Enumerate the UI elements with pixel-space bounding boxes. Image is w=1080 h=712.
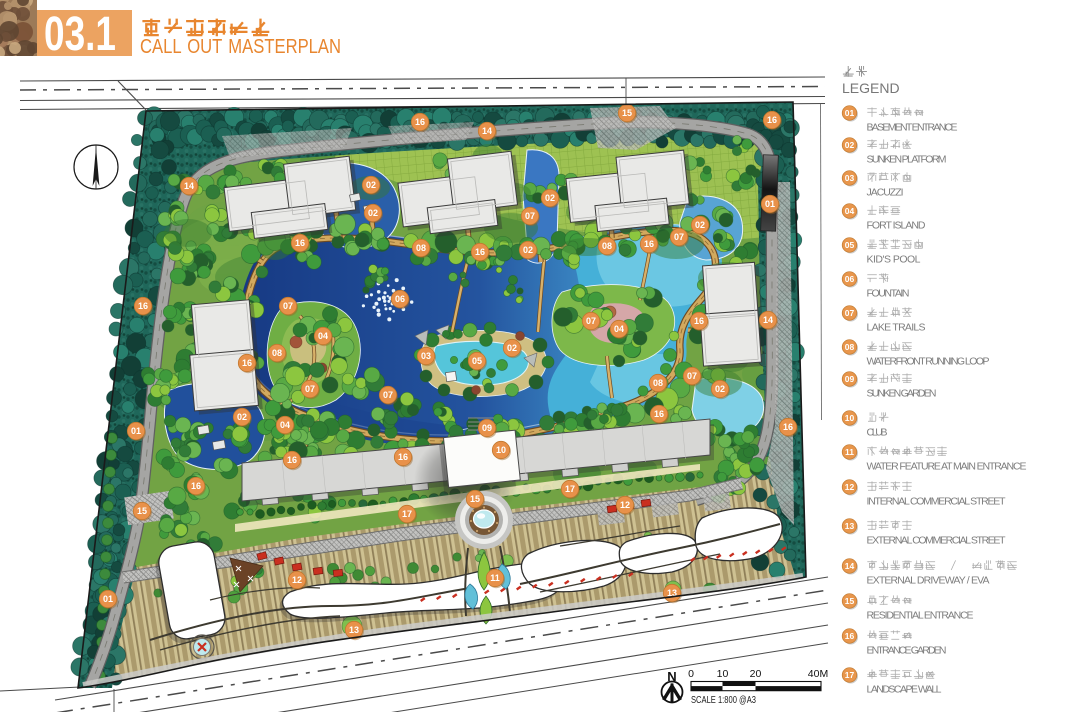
svg-text:ENTRANCE GARDEN: ENTRANCE GARDEN	[867, 645, 947, 657]
svg-text:JACUZZI: JACUZZI	[867, 187, 904, 199]
svg-text:09: 09	[845, 374, 855, 384]
svg-text:07: 07	[674, 232, 684, 242]
svg-text:11: 11	[490, 573, 500, 583]
svg-text:04: 04	[280, 420, 290, 430]
svg-text:16: 16	[475, 247, 485, 257]
svg-text:04: 04	[614, 324, 624, 334]
svg-text:17: 17	[565, 484, 575, 494]
svg-text:LAKE TRAILS: LAKE TRAILS	[867, 322, 926, 334]
svg-text:12: 12	[292, 575, 302, 585]
svg-text:01: 01	[103, 594, 113, 604]
svg-text:15: 15	[470, 494, 480, 504]
svg-text:SUNKEN PLATFORM: SUNKEN PLATFORM	[867, 154, 947, 166]
svg-text:16: 16	[295, 238, 305, 248]
svg-text:13: 13	[845, 521, 855, 531]
svg-text:0: 0	[688, 668, 694, 680]
svg-text:07: 07	[845, 308, 855, 318]
svg-text:LANDSCAPE WALL: LANDSCAPE WALL	[867, 684, 942, 696]
svg-text:08: 08	[272, 348, 282, 358]
svg-text:13: 13	[349, 625, 359, 635]
svg-text:EXTERNAL COMMERCIAL STREET: EXTERNAL COMMERCIAL STREET	[867, 535, 1007, 547]
svg-text:40M: 40M	[808, 668, 828, 680]
svg-text:05: 05	[845, 240, 855, 250]
svg-text:20: 20	[750, 668, 762, 680]
svg-text:08: 08	[845, 342, 855, 352]
svg-text:BASEMENT ENTRANCE: BASEMENT ENTRANCE	[867, 122, 958, 134]
svg-text:10: 10	[496, 445, 506, 455]
svg-text:01: 01	[845, 108, 855, 118]
svg-text:11: 11	[845, 447, 854, 457]
svg-text:09: 09	[482, 423, 492, 433]
svg-text:02: 02	[237, 412, 247, 422]
svg-text:10: 10	[845, 413, 855, 423]
svg-text:INTERNAL COMMERCIAL STREET: INTERNAL COMMERCIAL STREET	[867, 496, 1007, 508]
svg-text:16: 16	[415, 117, 425, 127]
svg-text:SUNKEN GARDEN: SUNKEN GARDEN	[867, 388, 937, 400]
svg-text:07: 07	[305, 384, 315, 394]
svg-text:16: 16	[654, 409, 664, 419]
svg-text:CALL OUT MASTERPLAN: CALL OUT MASTERPLAN	[140, 36, 341, 58]
svg-text:03: 03	[421, 351, 431, 361]
svg-text:16: 16	[783, 422, 793, 432]
svg-text:12: 12	[845, 482, 855, 492]
svg-text:CLUB: CLUB	[867, 427, 888, 439]
svg-text:WATERFRONT RUNNING LOOP: WATERFRONT RUNNING LOOP	[867, 356, 990, 368]
svg-text:03: 03	[845, 173, 855, 183]
svg-text:17: 17	[402, 509, 412, 519]
svg-text:06: 06	[395, 294, 405, 304]
svg-text:16: 16	[138, 301, 148, 311]
svg-text:08: 08	[602, 241, 612, 251]
svg-text:16: 16	[191, 481, 201, 491]
svg-text:06: 06	[845, 274, 855, 284]
svg-text:10: 10	[717, 668, 729, 680]
svg-text:14: 14	[482, 126, 492, 136]
svg-text:07: 07	[283, 301, 293, 311]
svg-text:16: 16	[767, 115, 777, 125]
svg-text:FOUNTAIN: FOUNTAIN	[867, 288, 910, 300]
svg-text:16: 16	[644, 239, 654, 249]
svg-text:02: 02	[368, 208, 378, 218]
svg-text:15: 15	[137, 506, 147, 516]
svg-text:14: 14	[184, 181, 194, 191]
svg-text:16: 16	[694, 316, 704, 326]
svg-text:01: 01	[765, 199, 775, 209]
svg-text:15: 15	[622, 108, 632, 118]
svg-text:07: 07	[687, 371, 697, 381]
svg-text:08: 08	[416, 243, 426, 253]
svg-text:16: 16	[398, 452, 408, 462]
svg-text:LEGEND: LEGEND	[842, 80, 900, 96]
svg-text:05: 05	[472, 356, 482, 366]
svg-text:SCALE 1:800 @A3: SCALE 1:800 @A3	[691, 694, 756, 706]
svg-text:08: 08	[653, 378, 663, 388]
svg-text:04: 04	[318, 331, 328, 341]
svg-text:02: 02	[366, 180, 376, 190]
svg-text:02: 02	[845, 140, 855, 150]
svg-text:14: 14	[845, 561, 855, 571]
svg-text:07: 07	[383, 390, 393, 400]
svg-text:03.1: 03.1	[44, 8, 116, 61]
svg-text:02: 02	[695, 220, 705, 230]
svg-text:02: 02	[715, 384, 725, 394]
svg-text:16: 16	[287, 455, 297, 465]
svg-text:17: 17	[845, 670, 855, 680]
svg-text:02: 02	[523, 245, 533, 255]
svg-text:FORT ISLAND: FORT ISLAND	[867, 220, 926, 232]
svg-text:12: 12	[620, 500, 630, 510]
svg-text:07: 07	[586, 316, 596, 326]
svg-text:EXTERNAL DRIVEWAY / EVA: EXTERNAL DRIVEWAY / EVA	[867, 575, 990, 587]
svg-text:WATER FEATURE AT MAIN ENTRANCE: WATER FEATURE AT MAIN ENTRANCE	[867, 461, 1027, 473]
svg-text:KID'S POOL: KID'S POOL	[867, 254, 921, 266]
svg-text:04: 04	[845, 206, 855, 216]
svg-text:01: 01	[131, 426, 141, 436]
svg-text:02: 02	[545, 193, 555, 203]
svg-text:16: 16	[242, 358, 252, 368]
svg-text:RESIDENTIAL ENTRANCE: RESIDENTIAL ENTRANCE	[867, 610, 974, 622]
svg-text:15: 15	[845, 596, 855, 606]
svg-text:16: 16	[845, 631, 855, 641]
svg-text:07: 07	[525, 211, 535, 221]
svg-text:02: 02	[507, 343, 517, 353]
svg-text:14: 14	[763, 315, 773, 325]
